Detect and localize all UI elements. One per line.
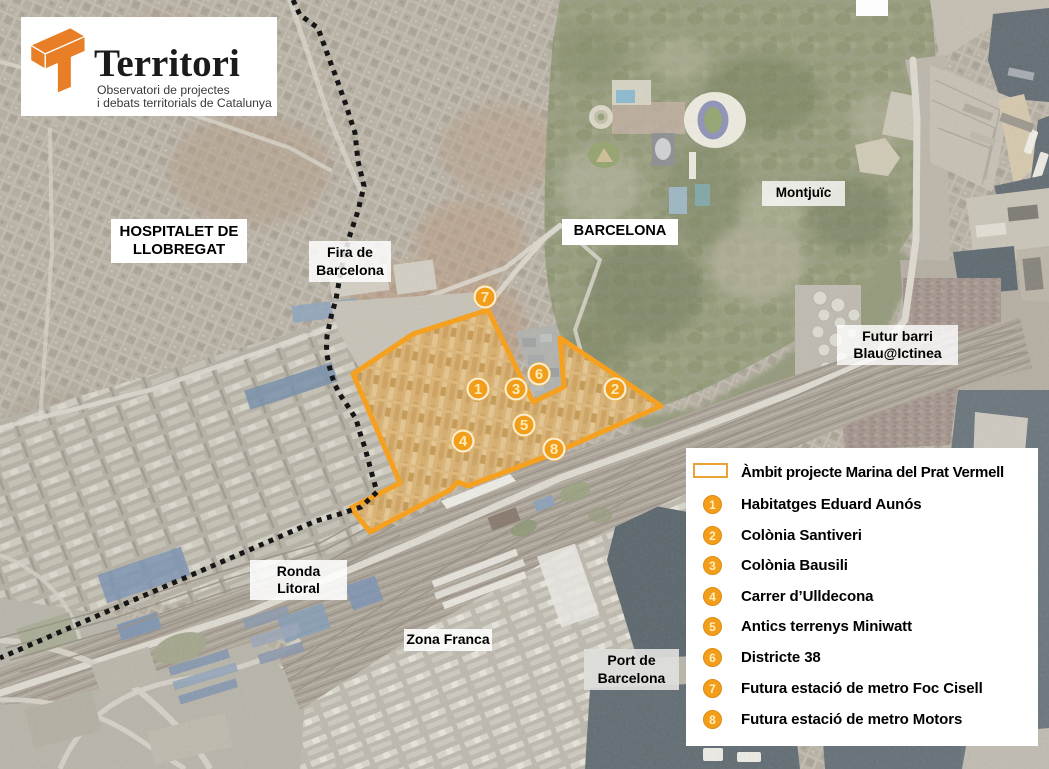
svg-text:5: 5 (520, 417, 528, 434)
svg-text:2: 2 (611, 381, 619, 398)
svg-text:6: 6 (535, 366, 543, 383)
svg-text:3: 3 (512, 381, 520, 398)
svg-text:1: 1 (474, 381, 482, 398)
svg-text:7: 7 (481, 289, 489, 306)
svg-text:8: 8 (550, 441, 558, 458)
svg-text:4: 4 (459, 433, 468, 450)
